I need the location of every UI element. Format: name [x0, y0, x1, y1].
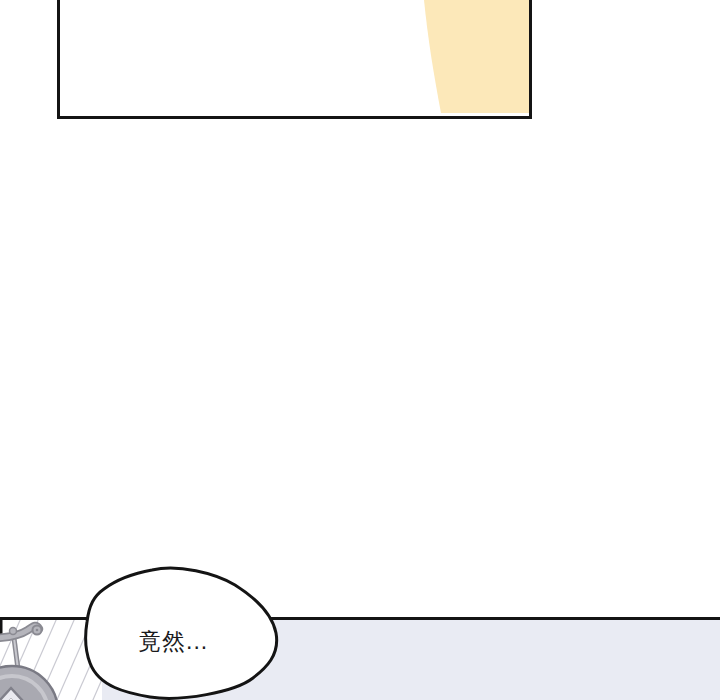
- webtoon-page: 竟然...: [0, 0, 720, 700]
- speech-bubble-text: 竟然...: [138, 628, 248, 654]
- ornament-nub: [10, 628, 17, 635]
- panel-artwork: [60, 0, 529, 113]
- light-shaft-shape: [424, 0, 529, 113]
- comic-panel-top: [57, 0, 532, 119]
